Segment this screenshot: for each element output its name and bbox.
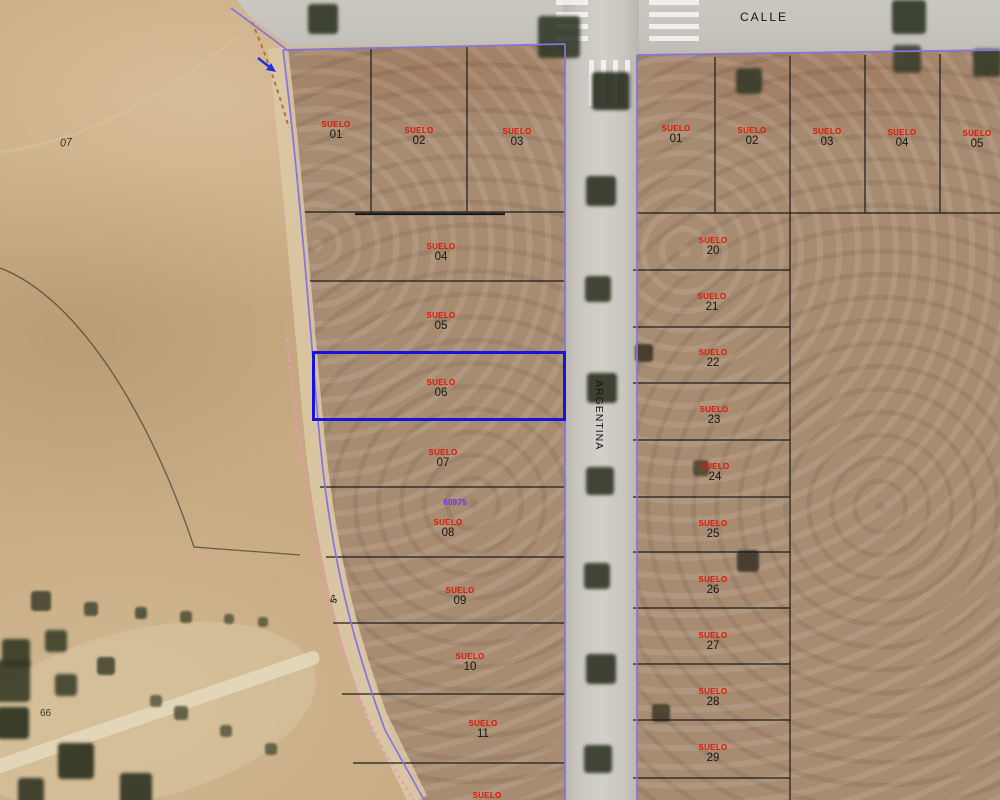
parcel-label-right-21[interactable]: SUELO 21	[697, 292, 726, 314]
parcel-label-left-12-partial[interactable]: SUELO	[472, 791, 501, 800]
crosswalk-west	[556, 0, 588, 48]
parcel-label-right-02[interactable]: SUELO 02	[737, 126, 766, 148]
cadastral-ref-label: 60975	[443, 498, 466, 507]
cadastral-map: CALLE ARGENTINA 07 66 5ª 60975 SUELO 01 …	[0, 0, 1000, 800]
parcel-label-left-02[interactable]: SUELO 02	[404, 126, 433, 148]
suelo-text: SUELO	[887, 128, 916, 137]
suelo-text: SUELO	[433, 518, 462, 527]
suelo-text: SUELO	[455, 652, 484, 661]
suelo-text: SUELO	[698, 631, 727, 640]
suelo-text: SUELO	[661, 124, 690, 133]
parcel-label-right-23[interactable]: SUELO 23	[699, 405, 728, 427]
suelo-text: SUELO	[698, 236, 727, 245]
suelo-text: SUELO	[426, 378, 455, 387]
parcel-label-right-22[interactable]: SUELO 22	[698, 348, 727, 370]
parcel-label-left-08[interactable]: SUELO 08	[433, 518, 462, 540]
suelo-text: SUELO	[426, 242, 455, 251]
suelo-text: SUELO	[502, 127, 531, 136]
parcel-label-right-28[interactable]: SUELO 28	[698, 687, 727, 709]
suelo-text: SUELO	[698, 519, 727, 528]
path-marker-5a: 5ª	[328, 594, 340, 605]
crosswalk-south	[589, 60, 637, 106]
parcel-label-left-09[interactable]: SUELO 09	[445, 586, 474, 608]
suelo-text: SUELO	[698, 348, 727, 357]
parcel-label-right-25[interactable]: SUELO 25	[698, 519, 727, 541]
suelo-text: SUELO	[445, 586, 474, 595]
field-track	[0, 36, 238, 152]
suelo-text: SUELO	[699, 405, 728, 414]
suelo-text: SUELO	[472, 791, 501, 800]
parcel-label-right-20[interactable]: SUELO 20	[698, 236, 727, 258]
parcel-label-right-27[interactable]: SUELO 27	[698, 631, 727, 653]
parcel-label-right-26[interactable]: SUELO 26	[698, 575, 727, 597]
sandy-area	[0, 589, 335, 800]
parcel-label-right-03[interactable]: SUELO 03	[812, 127, 841, 149]
suelo-text: SUELO	[468, 719, 497, 728]
parcel-label-right-29[interactable]: SUELO 29	[698, 743, 727, 765]
suelo-text: SUELO	[812, 127, 841, 136]
parcel-label-left-04[interactable]: SUELO 04	[426, 242, 455, 264]
parcel-label-left-10[interactable]: SUELO 10	[455, 652, 484, 674]
parcel-label-right-01[interactable]: SUELO 01	[661, 124, 690, 146]
parcel-label-left-07[interactable]: SUELO 07	[428, 448, 457, 470]
suelo-text: SUELO	[698, 575, 727, 584]
parcel-label-left-11[interactable]: SUELO 11	[468, 719, 497, 741]
suelo-text: SUELO	[698, 687, 727, 696]
field-parcel-07-label: 07	[59, 136, 72, 149]
corner-66-label: 66	[40, 708, 51, 719]
parcel-label-right-04[interactable]: SUELO 04	[887, 128, 916, 150]
field-boundary-curve	[0, 268, 300, 555]
parcel-label-right-05[interactable]: SUELO 05	[962, 129, 991, 151]
parcel-label-left-06[interactable]: SUELO 06	[426, 378, 455, 400]
blue-arrow-icon	[258, 58, 276, 72]
street-name-argentina: ARGENTINA	[593, 380, 605, 450]
parcel-label-right-24[interactable]: SUELO 24	[700, 462, 729, 484]
crosswalk-east	[649, 0, 699, 45]
street-name-calle: CALLE	[740, 10, 788, 24]
parcel-label-left-05[interactable]: SUELO 05	[426, 311, 455, 333]
suelo-text: SUELO	[737, 126, 766, 135]
tree-icons	[0, 0, 2, 2]
suelo-text: SUELO	[697, 292, 726, 301]
suelo-text: SUELO	[404, 126, 433, 135]
suelo-text: SUELO	[321, 120, 350, 129]
parcel-label-left-01[interactable]: SUELO 01	[321, 120, 350, 142]
suelo-text: SUELO	[962, 129, 991, 138]
suelo-text: SUELO	[700, 462, 729, 471]
suelo-text: SUELO	[426, 311, 455, 320]
parcel-label-left-03[interactable]: SUELO 03	[502, 127, 531, 149]
suelo-text: SUELO	[698, 743, 727, 752]
parcel-block-right[interactable]	[637, 48, 1000, 800]
suelo-text: SUELO	[428, 448, 457, 457]
